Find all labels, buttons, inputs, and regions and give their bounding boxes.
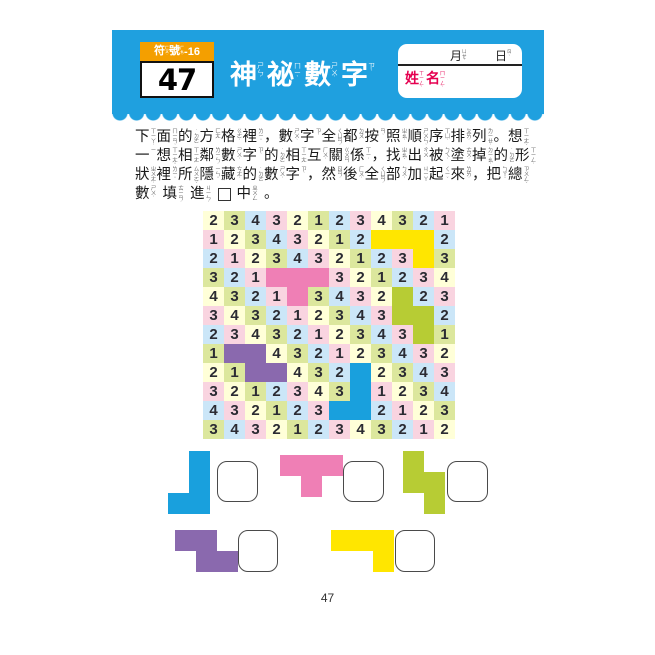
grid-cell: 2 bbox=[245, 249, 266, 268]
shape-cell bbox=[424, 493, 445, 514]
text-char: 藏ㄘㄤˊ bbox=[221, 166, 243, 185]
grid-cell: 2 bbox=[413, 211, 434, 230]
grid-cell: 3 bbox=[308, 249, 329, 268]
text-char: 祕ㄇㄧˋ bbox=[267, 60, 301, 90]
text-char: 數ㄕㄨˋ bbox=[279, 128, 301, 147]
text-char: 月ㄩㄝˋ bbox=[450, 49, 467, 64]
text-char: 號ㄏㄠˋ bbox=[169, 45, 184, 58]
grid-cell: 3 bbox=[371, 306, 392, 325]
text-char: 想ㄒㄧㄤˇ bbox=[508, 128, 530, 147]
text-char: 所ㄙㄨㄛˇ bbox=[178, 166, 200, 185]
grid-cell: 3 bbox=[203, 306, 224, 325]
instruction-line: 一ㄧ想ㄒㄧㄤˇ相ㄒㄧㄤ鄰ㄌㄧㄣˊ數ㄕㄨˋ字ㄗˋ的˙ㄉㄜ相ㄒㄧㄤ互ㄏㄨˋ關ㄍㄨㄢ係… bbox=[135, 147, 528, 166]
text-char: 塗ㄊㄨˊ bbox=[451, 147, 473, 166]
text-char: 互ㄏㄨˋ bbox=[307, 147, 329, 166]
page-number: 47 bbox=[0, 591, 655, 605]
grid-cell: 1 bbox=[308, 211, 329, 230]
text-char: 面ㄇㄧㄢˋ bbox=[157, 128, 179, 147]
grid-cell: 4 bbox=[308, 382, 329, 401]
text-char: 字ㄗˋ bbox=[300, 128, 322, 147]
shape-cell bbox=[189, 472, 210, 493]
grid-cell: 3 bbox=[245, 306, 266, 325]
grid-cell: 1 bbox=[287, 306, 308, 325]
grid-cell: 4 bbox=[413, 363, 434, 382]
grid-cell: 2 bbox=[203, 211, 224, 230]
grid-cell: 3 bbox=[329, 382, 350, 401]
text-char: 填ㄊㄧㄢˊ bbox=[163, 185, 185, 204]
text-char: 。 bbox=[494, 128, 509, 147]
shape-cell bbox=[373, 551, 394, 572]
grid-cell: 4 bbox=[266, 344, 287, 363]
grid-cell: 4 bbox=[287, 249, 308, 268]
grid-cell: 3 bbox=[224, 287, 245, 306]
text-char: 列ㄌㄧㄝˋ bbox=[472, 128, 494, 147]
grid-cell: 2 bbox=[371, 363, 392, 382]
grid-cell: 2 bbox=[350, 344, 371, 363]
grid-cell: 1 bbox=[308, 325, 329, 344]
text-char: 總ㄗㄨㄥˇ bbox=[508, 166, 530, 185]
grid-cell: 3 bbox=[203, 420, 224, 439]
text-char: 相ㄒㄧㄤ bbox=[178, 147, 200, 166]
text-char: 進ㄐㄧㄣˋ bbox=[190, 185, 212, 204]
grid-shape-cell-green-s bbox=[413, 325, 434, 344]
grid-cell: 2 bbox=[287, 325, 308, 344]
text-char: 鄰ㄌㄧㄣˊ bbox=[200, 147, 222, 166]
grid-shape-cell-purple-s bbox=[266, 363, 287, 382]
grid-cell: 2 bbox=[203, 363, 224, 382]
day-label: 日ㄖˋ bbox=[495, 47, 512, 65]
grid-cell: 3 bbox=[224, 325, 245, 344]
grid-cell: 2 bbox=[392, 382, 413, 401]
text-char: 神ㄕㄣˊ bbox=[230, 60, 264, 90]
grid-cell: 3 bbox=[308, 287, 329, 306]
grid-cell: 3 bbox=[224, 401, 245, 420]
text-char: 的˙ㄉㄜ bbox=[243, 166, 265, 185]
grid-cell: 1 bbox=[203, 230, 224, 249]
grid-cell: 3 bbox=[434, 287, 455, 306]
grid-cell: 2 bbox=[350, 268, 371, 287]
shape-cell bbox=[403, 451, 424, 472]
grid-shape-cell-pink-t bbox=[266, 268, 287, 287]
grid-cell: 3 bbox=[329, 306, 350, 325]
grid-cell: 4 bbox=[350, 306, 371, 325]
workbook-page: 符ㄈㄨˊ號ㄏㄠˋ-16 47 神ㄕㄣˊ祕ㄇㄧˋ數ㄕㄨˋ字ㄗˋ 月ㄩㄝˋ 日ㄖˋ … bbox=[0, 0, 655, 655]
text-char: 姓ㄒㄧㄥˋ bbox=[405, 70, 424, 92]
grid-cell: 4 bbox=[203, 401, 224, 420]
grid-cell: 2 bbox=[413, 287, 434, 306]
text-char: 加ㄐㄧㄚ bbox=[408, 166, 430, 185]
grid-cell: 2 bbox=[413, 401, 434, 420]
grid-cell: 2 bbox=[203, 325, 224, 344]
grid-cell: 1 bbox=[266, 401, 287, 420]
text-char: ， bbox=[372, 147, 387, 166]
grid-cell: 4 bbox=[224, 420, 245, 439]
grid-cell: 3 bbox=[434, 401, 455, 420]
grid-cell: 3 bbox=[371, 344, 392, 363]
grid-cell: 2 bbox=[245, 401, 266, 420]
grid-cell: 2 bbox=[434, 230, 455, 249]
text-char: 來ㄌㄞˊ bbox=[451, 166, 473, 185]
grid-cell: 1 bbox=[371, 382, 392, 401]
grid-cell: 4 bbox=[392, 344, 413, 363]
text-char: 掉ㄉㄧㄠˋ bbox=[472, 147, 494, 166]
grid-cell: 2 bbox=[224, 268, 245, 287]
text-char: 裡ㄌㄧˇ bbox=[243, 128, 265, 147]
instruction-line: 下ㄒㄧㄚˋ面ㄇㄧㄢˋ的˙ㄉㄜ方ㄈㄤ格ㄍㄜˊ裡ㄌㄧˇ，數ㄕㄨˋ字ㄗˋ全ㄑㄩㄢˊ都ㄉ… bbox=[135, 128, 528, 147]
text-char: ， bbox=[264, 128, 279, 147]
text-char: 數ㄕㄨˋ bbox=[304, 60, 338, 90]
answer-box-3[interactable] bbox=[447, 461, 488, 502]
grid-cell: 3 bbox=[245, 230, 266, 249]
text-char: 順ㄕㄨㄣˋ bbox=[408, 128, 430, 147]
grid-cell: 1 bbox=[203, 344, 224, 363]
header-band: 符ㄈㄨˊ號ㄏㄠˋ-16 47 神ㄕㄣˊ祕ㄇㄧˋ數ㄕㄨˋ字ㄗˋ 月ㄩㄝˋ 日ㄖˋ … bbox=[112, 30, 544, 114]
grid-cell: 2 bbox=[329, 325, 350, 344]
text-char: 的˙ㄉㄜ bbox=[494, 147, 516, 166]
answer-shape-yellow-l bbox=[331, 530, 394, 572]
shape-cell bbox=[280, 455, 301, 476]
grid-cell: 3 bbox=[413, 344, 434, 363]
text-char: 狀ㄓㄨㄤˋ bbox=[135, 166, 157, 185]
text-char: 的˙ㄉㄜ bbox=[178, 128, 200, 147]
grid-cell: 2 bbox=[224, 230, 245, 249]
grid-cell: 4 bbox=[245, 211, 266, 230]
total-answer-box[interactable] bbox=[218, 188, 231, 201]
grid-cell: 1 bbox=[434, 211, 455, 230]
grid-cell: 3 bbox=[392, 363, 413, 382]
grid-cell: 4 bbox=[245, 325, 266, 344]
grid-cell: 2 bbox=[224, 382, 245, 401]
text-char: 出ㄔㄨ bbox=[408, 147, 430, 166]
shape-cell bbox=[373, 530, 394, 551]
shape-cell bbox=[424, 472, 445, 493]
grid-cell: 3 bbox=[434, 363, 455, 382]
text-char: 起ㄑㄧˇ bbox=[429, 166, 451, 185]
shape-cell bbox=[196, 530, 217, 551]
answer-shape-blue-j bbox=[168, 451, 210, 514]
grid-cell: 3 bbox=[413, 382, 434, 401]
grid-cell: 2 bbox=[308, 344, 329, 363]
name-label: 姓ㄒㄧㄥˋ名ㄇㄧㄥˊ bbox=[405, 70, 445, 92]
grid-cell: 2 bbox=[434, 344, 455, 363]
grid-shape-cell-green-s bbox=[392, 287, 413, 306]
grid-cell: 3 bbox=[350, 287, 371, 306]
shape-cell bbox=[331, 530, 352, 551]
grid-cell: 2 bbox=[308, 306, 329, 325]
grid-cell: 2 bbox=[308, 420, 329, 439]
text-char: 形ㄒㄧㄥˊ bbox=[515, 147, 537, 166]
grid-cell: 2 bbox=[287, 401, 308, 420]
grid-cell: 3 bbox=[287, 382, 308, 401]
text-char: 相ㄒㄧㄤ bbox=[286, 147, 308, 166]
number-grid: 2343212343211234321222123432123332132123… bbox=[203, 211, 455, 439]
grid-cell: 3 bbox=[413, 268, 434, 287]
grid-cell: 3 bbox=[308, 401, 329, 420]
grid-cell: 4 bbox=[350, 420, 371, 439]
scallop-edge bbox=[112, 113, 544, 122]
grid-shape-cell-purple-s bbox=[224, 344, 245, 363]
grid-cell: 2 bbox=[392, 420, 413, 439]
grid-cell: 3 bbox=[203, 382, 224, 401]
grid-cell: 3 bbox=[329, 268, 350, 287]
grid-cell: 2 bbox=[308, 230, 329, 249]
text-char: 數ㄕㄨˋ bbox=[221, 147, 243, 166]
grid-cell: 3 bbox=[266, 249, 287, 268]
grid-cell: 2 bbox=[266, 420, 287, 439]
grid-shape-cell-pink-t bbox=[308, 268, 329, 287]
grid-cell: 1 bbox=[392, 401, 413, 420]
grid-shape-cell-pink-t bbox=[287, 287, 308, 306]
grid-cell: 1 bbox=[413, 420, 434, 439]
grid-cell: 1 bbox=[224, 363, 245, 382]
text-char: 方ㄈㄤ bbox=[200, 128, 222, 147]
grid-cell: 2 bbox=[371, 401, 392, 420]
grid-cell: 2 bbox=[434, 306, 455, 325]
shape-cell bbox=[217, 551, 238, 572]
grid-cell: 3 bbox=[287, 230, 308, 249]
text-char: 數ㄕㄨˋ bbox=[135, 185, 157, 204]
grid-shape-cell-blue-j bbox=[350, 363, 371, 382]
instructions-text: 下ㄒㄧㄚˋ面ㄇㄧㄢˋ的˙ㄉㄜ方ㄈㄤ格ㄍㄜˊ裡ㄌㄧˇ，數ㄕㄨˋ字ㄗˋ全ㄑㄩㄢˊ都ㄉ… bbox=[135, 128, 528, 204]
text-char: ， bbox=[307, 166, 322, 185]
grid-shape-cell-green-s bbox=[413, 306, 434, 325]
grid-cell: 2 bbox=[329, 363, 350, 382]
grid-shape-cell-blue-j bbox=[329, 401, 350, 420]
shape-cell bbox=[352, 530, 373, 551]
text-char: 都ㄉㄡ bbox=[343, 128, 365, 147]
answer-shape-pink-t bbox=[280, 455, 343, 497]
grid-cell: 2 bbox=[350, 230, 371, 249]
grid-cell: 1 bbox=[245, 382, 266, 401]
text-char: 裡ㄌㄧˇ bbox=[157, 166, 179, 185]
shape-cell bbox=[301, 476, 322, 497]
answer-shape-green-s bbox=[403, 451, 445, 514]
shape-cell bbox=[301, 455, 322, 476]
grid-cell: 2 bbox=[245, 287, 266, 306]
text-char: 全ㄑㄩㄢˊ bbox=[365, 166, 387, 185]
grid-cell: 4 bbox=[371, 325, 392, 344]
text-char: 的˙ㄉㄜ bbox=[264, 147, 286, 166]
grid-cell: 3 bbox=[434, 249, 455, 268]
shape-cell bbox=[322, 455, 343, 476]
answer-box-4[interactable] bbox=[238, 530, 278, 572]
text-char: 關ㄍㄨㄢ bbox=[329, 147, 351, 166]
badge-number: 47 bbox=[140, 61, 214, 98]
grid-shape-cell-blue-j bbox=[350, 382, 371, 401]
grid-cell: 3 bbox=[371, 420, 392, 439]
grid-cell: 3 bbox=[350, 211, 371, 230]
text-char: 後ㄏㄡˋ bbox=[343, 166, 365, 185]
grid-cell: 4 bbox=[434, 382, 455, 401]
grid-shape-cell-pink-t bbox=[287, 268, 308, 287]
grid-cell: 3 bbox=[245, 420, 266, 439]
grid-cell: 2 bbox=[287, 211, 308, 230]
grid-shape-cell-yellow-l bbox=[392, 230, 413, 249]
shape-cell bbox=[189, 451, 210, 472]
grid-cell: 1 bbox=[287, 420, 308, 439]
grid-cell: 4 bbox=[434, 268, 455, 287]
text-char: 想ㄒㄧㄤˇ bbox=[157, 147, 179, 166]
date-row[interactable]: 月ㄩㄝˋ 日ㄖˋ bbox=[398, 44, 522, 66]
grid-cell: 3 bbox=[203, 268, 224, 287]
text-char: 隱ㄧㄣˇ bbox=[200, 166, 222, 185]
name-date-box[interactable]: 月ㄩㄝˋ 日ㄖˋ 姓ㄒㄧㄥˋ名ㄇㄧㄥˊ bbox=[398, 44, 522, 98]
text-char: 一ㄧ bbox=[135, 147, 157, 166]
answer-box-5[interactable] bbox=[395, 530, 435, 572]
text-char: 係ㄒㄧˋ bbox=[350, 147, 372, 166]
grid-cell: 1 bbox=[266, 287, 287, 306]
text-char: -16 bbox=[184, 46, 200, 58]
answer-box-2[interactable] bbox=[343, 461, 384, 502]
grid-cell: 3 bbox=[350, 325, 371, 344]
grid-cell: 2 bbox=[371, 287, 392, 306]
shape-cell bbox=[189, 493, 210, 514]
page-title: 神ㄕㄣˊ祕ㄇㄧˋ數ㄕㄨˋ字ㄗˋ bbox=[230, 60, 375, 90]
grid-shape-cell-green-s bbox=[392, 306, 413, 325]
text-char: 被ㄅㄟˋ bbox=[429, 147, 451, 166]
grid-shape-cell-purple-s bbox=[245, 344, 266, 363]
grid-shape-cell-blue-j bbox=[350, 401, 371, 420]
text-char: 下ㄒㄧㄚˋ bbox=[135, 128, 157, 147]
text-char: 符ㄈㄨˊ bbox=[154, 45, 169, 58]
grid-cell: 2 bbox=[371, 249, 392, 268]
grid-cell: 3 bbox=[392, 325, 413, 344]
grid-cell: 2 bbox=[266, 306, 287, 325]
shape-cell bbox=[175, 530, 196, 551]
instruction-line: 數ㄕㄨˋ填ㄊㄧㄢˊ進ㄐㄧㄣˋ中ㄓㄨㄥ。 bbox=[135, 185, 528, 204]
text-char: 格ㄍㄜˊ bbox=[221, 128, 243, 147]
text-char: 數ㄕㄨˋ bbox=[264, 166, 286, 185]
text-char: 排ㄆㄞˊ bbox=[451, 128, 473, 147]
grid-cell: 3 bbox=[392, 249, 413, 268]
text-char: 字ㄗˋ bbox=[341, 60, 375, 90]
grid-cell: 4 bbox=[203, 287, 224, 306]
text-char: 全ㄑㄩㄢˊ bbox=[322, 128, 344, 147]
grid-cell: 1 bbox=[434, 325, 455, 344]
text-char: 照ㄓㄠˋ bbox=[386, 128, 408, 147]
grid-cell: 4 bbox=[224, 306, 245, 325]
text-char: 日ㄖˋ bbox=[495, 49, 512, 63]
text-char: ， bbox=[472, 166, 487, 185]
grid-shape-cell-yellow-l bbox=[413, 249, 434, 268]
text-char: 中ㄓㄨㄥ bbox=[237, 185, 259, 204]
shape-cell bbox=[196, 551, 217, 572]
grid-cell: 1 bbox=[329, 344, 350, 363]
grid-cell: 3 bbox=[329, 420, 350, 439]
grid-cell: 2 bbox=[434, 420, 455, 439]
grid-cell: 2 bbox=[329, 249, 350, 268]
shape-cell bbox=[168, 493, 189, 514]
text-char: 然ㄖㄢˊ bbox=[322, 166, 344, 185]
grid-cell: 1 bbox=[224, 249, 245, 268]
grid-cell: 3 bbox=[266, 211, 287, 230]
grid-cell: 3 bbox=[287, 344, 308, 363]
grid-shape-cell-purple-s bbox=[245, 363, 266, 382]
text-char: 按ㄢˋ bbox=[365, 128, 387, 147]
grid-cell: 3 bbox=[308, 363, 329, 382]
grid-cell: 3 bbox=[266, 325, 287, 344]
text-char: 部ㄅㄨˋ bbox=[386, 166, 408, 185]
text-char: 字ㄗˋ bbox=[286, 166, 308, 185]
grid-cell: 3 bbox=[392, 211, 413, 230]
grid-cell: 4 bbox=[329, 287, 350, 306]
text-char: 。 bbox=[264, 185, 279, 204]
grid-cell: 2 bbox=[266, 382, 287, 401]
grid-cell: 1 bbox=[329, 230, 350, 249]
grid-shape-cell-yellow-l bbox=[413, 230, 434, 249]
text-char: 字ㄗˋ bbox=[243, 147, 265, 166]
grid-cell: 3 bbox=[224, 211, 245, 230]
grid-cell: 2 bbox=[329, 211, 350, 230]
grid-cell: 4 bbox=[371, 211, 392, 230]
grid-cell: 1 bbox=[371, 268, 392, 287]
text-char: 序ㄒㄩˋ bbox=[429, 128, 451, 147]
instruction-line: 狀ㄓㄨㄤˋ裡ㄌㄧˇ所ㄙㄨㄛˇ隱ㄧㄣˇ藏ㄘㄤˊ的˙ㄉㄜ數ㄕㄨˋ字ㄗˋ，然ㄖㄢˊ後ㄏ… bbox=[135, 166, 528, 185]
grid-cell: 4 bbox=[287, 363, 308, 382]
grid-shape-cell-yellow-l bbox=[371, 230, 392, 249]
badge-tab-label: 符ㄈㄨˊ號ㄏㄠˋ-16 bbox=[140, 42, 214, 61]
text-char: 把ㄅㄚˇ bbox=[487, 166, 509, 185]
text-char: 找ㄓㄠˇ bbox=[386, 147, 408, 166]
text-char: 名ㄇㄧㄥˊ bbox=[426, 70, 445, 92]
answer-shape-purple-s bbox=[175, 530, 238, 572]
month-label: 月ㄩㄝˋ bbox=[450, 47, 467, 65]
lesson-badge: 符ㄈㄨˊ號ㄏㄠˋ-16 47 bbox=[140, 42, 214, 98]
grid-cell: 4 bbox=[266, 230, 287, 249]
grid-cell: 2 bbox=[392, 268, 413, 287]
grid-cell: 1 bbox=[245, 268, 266, 287]
grid-cell: 2 bbox=[203, 249, 224, 268]
grid-cell: 1 bbox=[350, 249, 371, 268]
answer-box-1[interactable] bbox=[217, 461, 258, 502]
shape-cell bbox=[403, 472, 424, 493]
